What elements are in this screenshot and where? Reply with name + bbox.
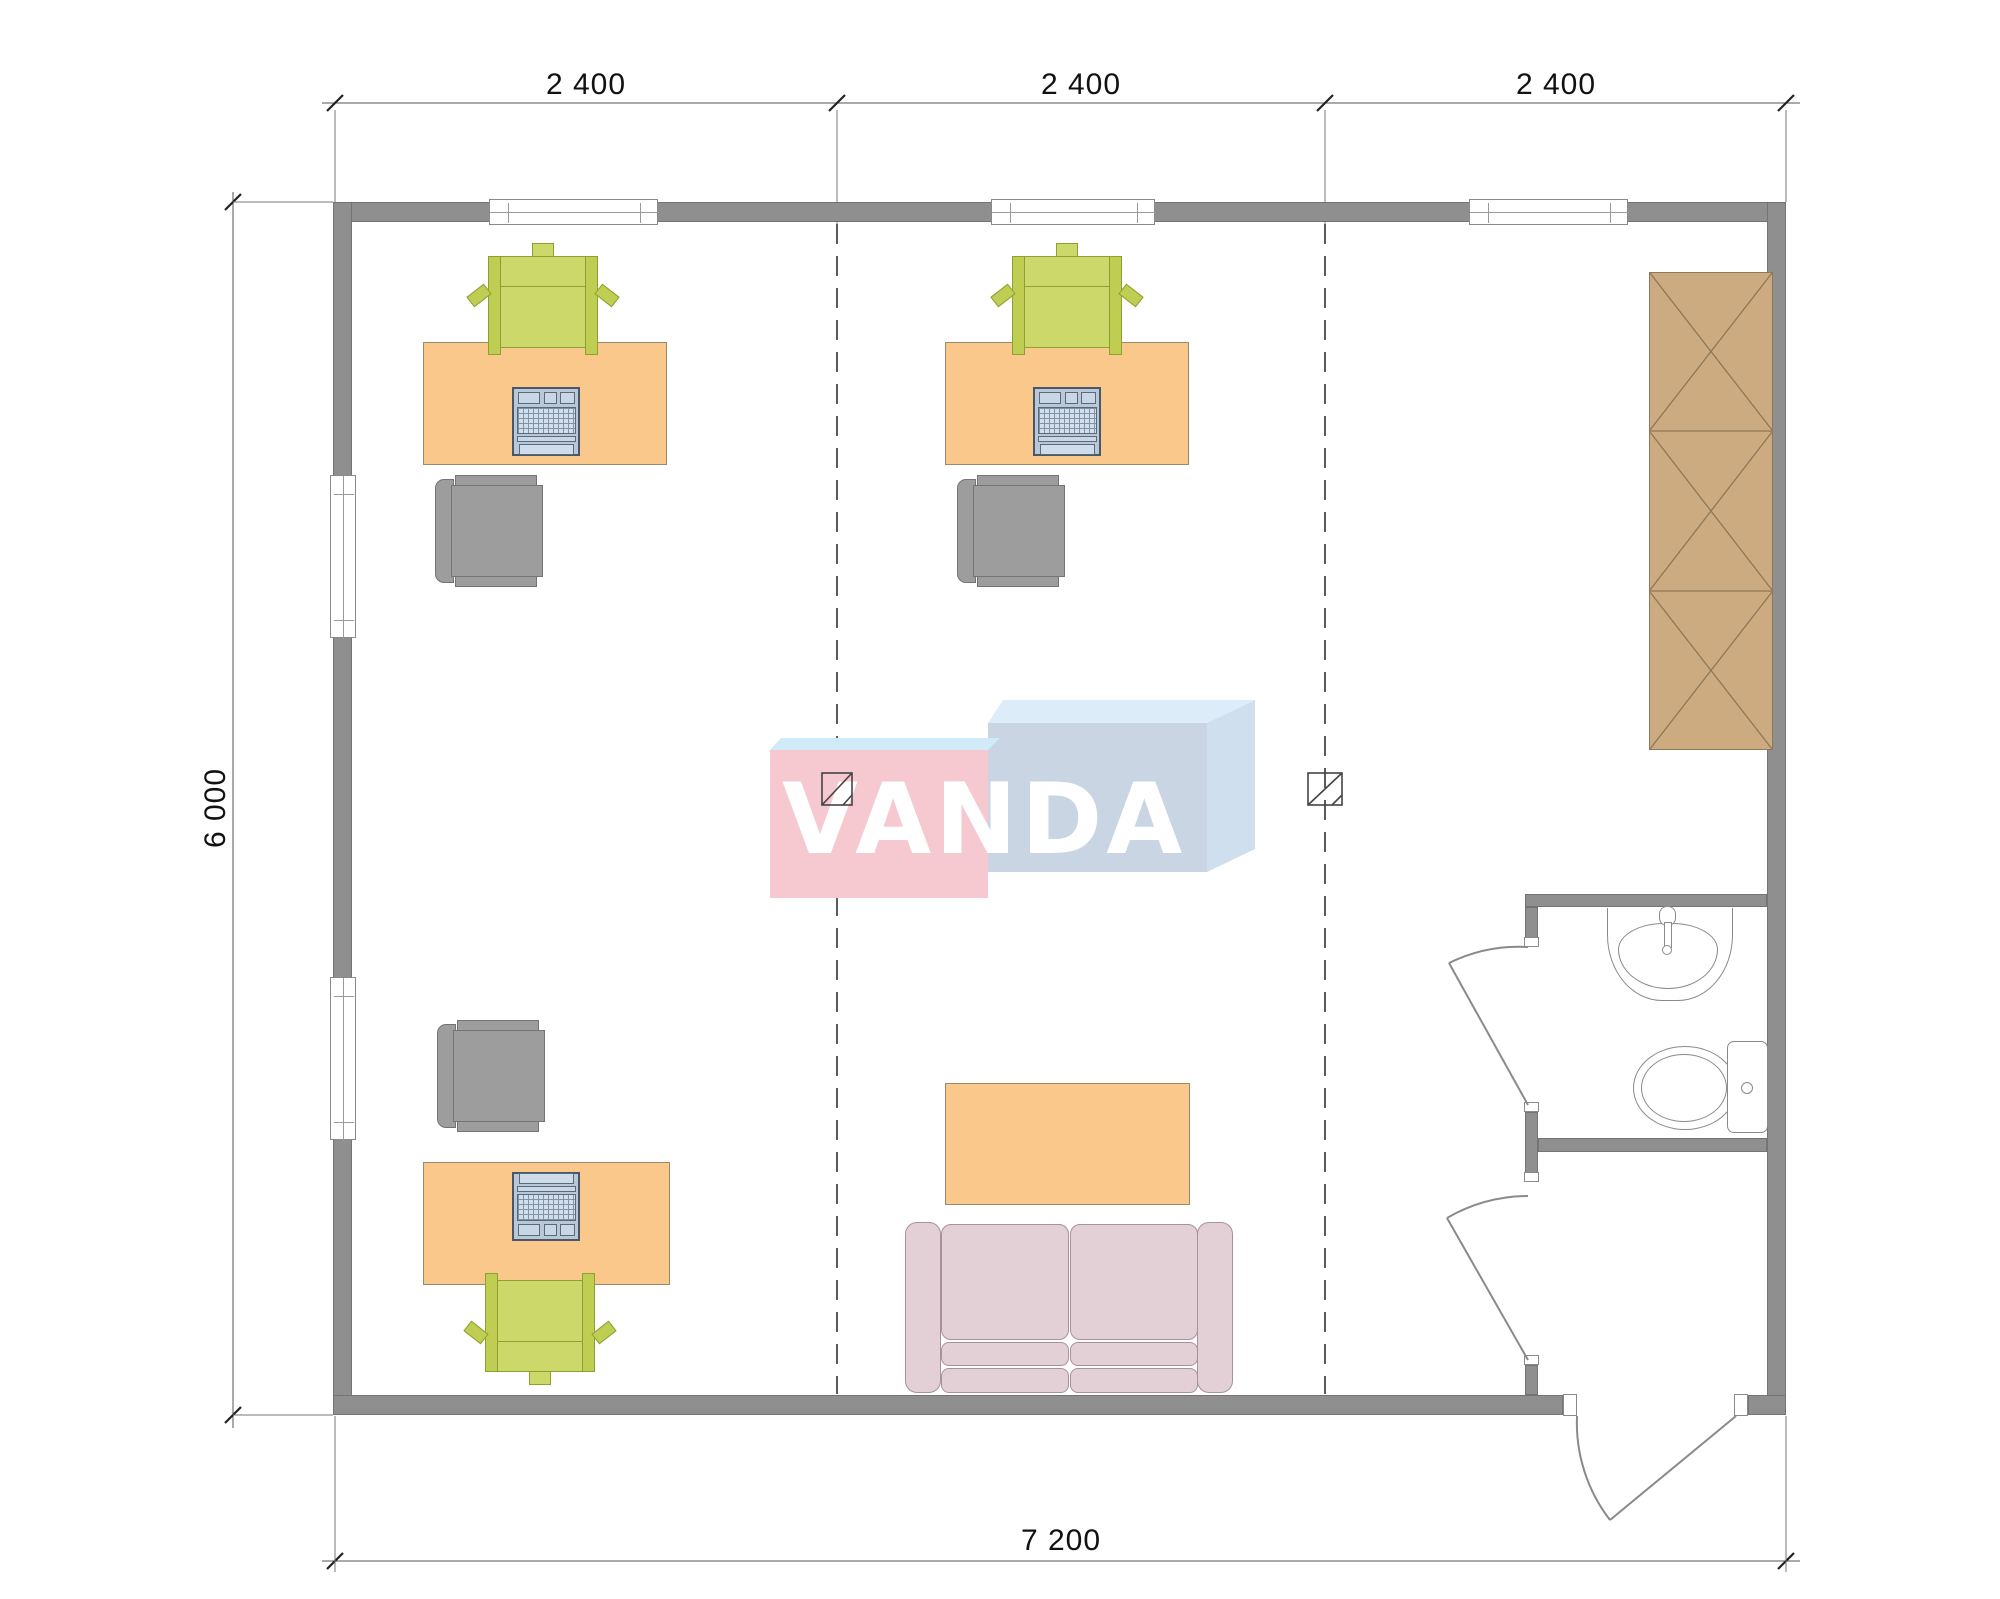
chair-post bbox=[1012, 256, 1025, 355]
chair-headrest bbox=[529, 1371, 551, 1385]
sink-drain bbox=[1662, 945, 1672, 955]
chair-headrest bbox=[532, 243, 554, 257]
wall-left bbox=[333, 202, 352, 1415]
window-left-1 bbox=[330, 475, 356, 638]
tick bbox=[225, 1407, 241, 1423]
chair-seat bbox=[453, 1030, 545, 1122]
laptop-3 bbox=[512, 1172, 580, 1241]
logo-box-side-face bbox=[1207, 700, 1255, 872]
dimension-label-bottom: 7 200 bbox=[1011, 1526, 1111, 1556]
sofa-seat-cushion bbox=[1070, 1224, 1198, 1340]
tick bbox=[1317, 95, 1333, 111]
sofa-back-cushion bbox=[1070, 1368, 1198, 1393]
coffee-table bbox=[945, 1083, 1190, 1205]
vanda-logo: VANDA bbox=[770, 700, 1260, 900]
wall-bathroom-left-segment bbox=[1525, 1365, 1538, 1395]
chair-back bbox=[488, 256, 598, 287]
door-leaf-exterior bbox=[1610, 1416, 1736, 1520]
chair-back bbox=[1012, 256, 1122, 287]
logo-box-top-face bbox=[770, 738, 1000, 750]
door-jamb bbox=[1524, 1102, 1539, 1112]
tick bbox=[225, 194, 241, 210]
visitor-chair-1 bbox=[488, 243, 598, 355]
chair-seat bbox=[497, 1280, 583, 1342]
window-top-1 bbox=[489, 199, 658, 225]
tick bbox=[327, 1553, 343, 1569]
visitor-chair-2 bbox=[1012, 243, 1122, 355]
chair-post bbox=[488, 256, 501, 355]
door-swing-exterior bbox=[1577, 1416, 1610, 1520]
toilet bbox=[1633, 1041, 1768, 1134]
laptop-2 bbox=[1033, 387, 1101, 456]
tick bbox=[829, 95, 845, 111]
chair-seat bbox=[973, 485, 1065, 577]
wall-bathroom-left-segment bbox=[1525, 1112, 1538, 1173]
logo-text: VANDA bbox=[782, 770, 1186, 870]
task-chair-3 bbox=[437, 1020, 547, 1132]
chair-post bbox=[1109, 256, 1122, 355]
door-jamb bbox=[1524, 937, 1539, 947]
chair-post bbox=[585, 256, 598, 355]
toilet-flush-button bbox=[1741, 1082, 1753, 1094]
toilet-seat bbox=[1641, 1054, 1727, 1122]
sofa-seat-cushion bbox=[941, 1224, 1069, 1340]
sofa-back-cushion bbox=[941, 1342, 1069, 1366]
chair-armrest bbox=[1118, 284, 1143, 308]
dimension-label-top-3: 2 400 bbox=[1506, 70, 1606, 100]
wall-bathroom-left-segment bbox=[1525, 907, 1538, 938]
door-leaf-storage bbox=[1447, 1218, 1528, 1360]
wardrobe-cabinet bbox=[1649, 272, 1773, 750]
door-leaf-bathroom bbox=[1449, 963, 1528, 1105]
door-jamb bbox=[1734, 1394, 1748, 1416]
sink bbox=[1607, 908, 1733, 1001]
door-jamb bbox=[1524, 1172, 1539, 1182]
chair-seat bbox=[1024, 286, 1110, 348]
wall-bottom bbox=[333, 1395, 1563, 1415]
chair-post bbox=[582, 1273, 595, 1372]
dimension-label-left: 6 000 bbox=[201, 748, 231, 868]
sofa bbox=[905, 1222, 1233, 1393]
door-jamb bbox=[1563, 1394, 1577, 1416]
tick bbox=[1778, 1553, 1794, 1569]
sofa-armrest bbox=[905, 1222, 941, 1393]
dimension-label-top-1: 2 400 bbox=[536, 70, 636, 100]
tick bbox=[1778, 95, 1794, 111]
sofa-back-cushion bbox=[1070, 1342, 1198, 1366]
window-top-2 bbox=[991, 199, 1155, 225]
wall-bottom-stub bbox=[1748, 1395, 1786, 1415]
chair-armrest bbox=[591, 1321, 616, 1345]
dimension-label-top-2: 2 400 bbox=[1031, 70, 1131, 100]
sofa-back-cushion bbox=[941, 1368, 1069, 1393]
task-chair-2 bbox=[957, 475, 1067, 587]
window-top-3 bbox=[1469, 199, 1628, 225]
door-jamb bbox=[1524, 1355, 1539, 1365]
sofa-armrest bbox=[1197, 1222, 1233, 1393]
laptop-1 bbox=[512, 387, 580, 456]
chair-seat bbox=[500, 286, 586, 348]
tick bbox=[327, 95, 343, 111]
visitor-chair-3 bbox=[485, 1273, 595, 1385]
floor-outlet-symbol-2 bbox=[1308, 773, 1342, 805]
window-left-2 bbox=[330, 977, 356, 1140]
wall-bathroom-top bbox=[1525, 894, 1767, 907]
floor-plan-canvas: 2 400 2 400 2 400 6 000 7 200 bbox=[0, 0, 2000, 1599]
door-swing-storage bbox=[1447, 1196, 1528, 1218]
wall-bathroom-divider bbox=[1538, 1138, 1767, 1152]
task-chair-1 bbox=[435, 475, 545, 587]
chair-back bbox=[485, 1341, 595, 1372]
chair-armrest bbox=[594, 284, 619, 308]
door-swing-bathroom bbox=[1449, 947, 1528, 963]
chair-seat bbox=[451, 485, 543, 577]
chair-post bbox=[485, 1273, 498, 1372]
chair-headrest bbox=[1056, 243, 1078, 257]
